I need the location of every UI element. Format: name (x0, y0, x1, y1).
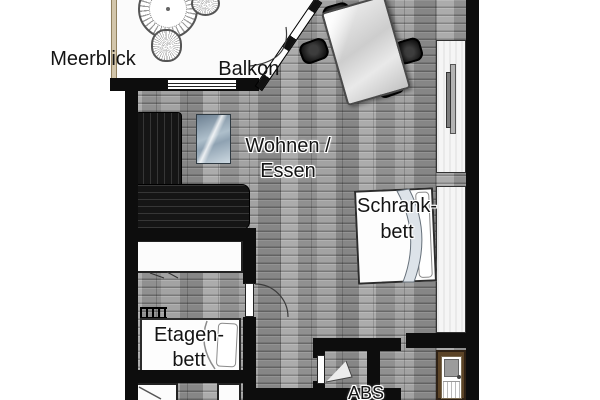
label-abs: ABS (329, 356, 384, 400)
washbasin (217, 383, 241, 400)
label-meerblick: Meerblick (28, 22, 136, 97)
wall-mid-upper (243, 228, 256, 284)
shower-tray (133, 383, 178, 400)
abs-door-leaf (317, 355, 325, 384)
kidsroom-door-leaf (245, 283, 254, 317)
label-schrankbett: Schrank- bett (354, 193, 440, 245)
wall-right (466, 0, 479, 400)
label-kueche: Küche (386, 385, 465, 400)
faucet (457, 375, 461, 379)
kids-wardrobe (135, 240, 243, 273)
sofa-horizontal-arm (135, 184, 250, 230)
wall-below-sofa (125, 228, 256, 241)
label-etagenbett-line1: Etagen- (136, 323, 242, 348)
label-balkon-text: Balkon (218, 58, 279, 80)
label-wohnen-line2: Essen (225, 159, 351, 184)
balcony-table-center (166, 7, 170, 11)
tall-cabinet (436, 186, 466, 333)
label-schrankbett-line2: bett (354, 219, 440, 245)
floorplan-canvas: Meerblick Balkon Wohnen / Essen Schrank-… (0, 0, 600, 400)
label-balkon: Balkon (196, 32, 279, 107)
balcony-chair-bottom (151, 29, 182, 62)
balcony-table-top (149, 0, 187, 28)
label-abs-text: ABS (348, 383, 384, 400)
tv-on-sideboard-panel (446, 72, 451, 128)
label-etagenbett: Etagen- bett (136, 323, 242, 373)
label-meerblick-text: Meerblick (50, 48, 136, 70)
label-schrankbett-line1: Schrank- (354, 193, 440, 219)
wall-below-cabinet (406, 333, 466, 348)
label-etagenbett-line2: bett (136, 348, 242, 373)
label-wohnen-essen: Wohnen / Essen (225, 134, 351, 184)
label-wohnen-line1: Wohnen / (225, 134, 351, 159)
sink-bowl (444, 359, 459, 377)
wall-abs-top (313, 338, 401, 351)
